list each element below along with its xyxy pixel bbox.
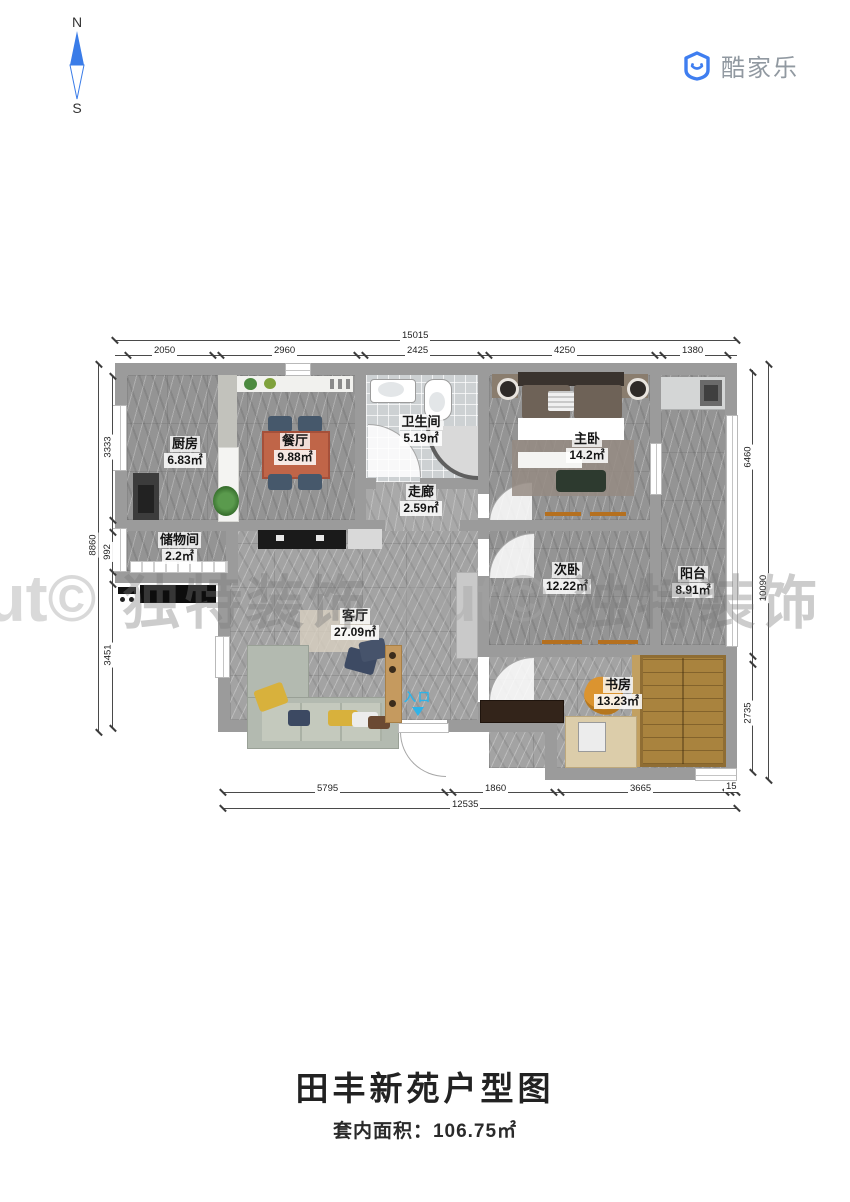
dim-top-total: 15015	[400, 331, 430, 341]
dim-top-seg: 4250	[552, 346, 577, 356]
kujiale-shield-icon	[682, 51, 712, 81]
study-wardrobe	[480, 700, 564, 723]
wall	[478, 531, 489, 539]
tv-console-detail	[316, 535, 324, 541]
rug-strip	[542, 640, 582, 644]
entrance-arrow-icon	[412, 707, 424, 716]
dim-top-seg: 2425	[405, 346, 430, 356]
dim-bottom-seg: 3665	[628, 784, 653, 794]
wall	[545, 732, 557, 780]
room-label-study: 书房 13.23㎡	[572, 677, 664, 709]
toilet-seat	[429, 392, 445, 412]
balcony-floor	[661, 375, 725, 645]
rug-strip	[590, 512, 626, 516]
area-subtitle: 套内面积：106.75㎡	[0, 1116, 850, 1143]
dim-top-seg: 1380	[680, 346, 705, 356]
dim-left-total: 8860	[89, 532, 99, 557]
kitchen-stove-top	[138, 485, 154, 513]
pillow-navy	[288, 710, 310, 726]
bedside-lamp	[497, 378, 519, 400]
plant	[244, 378, 257, 390]
dining-chair	[268, 474, 292, 490]
room-label-dining: 餐厅 9.88㎡	[255, 433, 335, 465]
dining-chair	[268, 416, 292, 432]
tv-console	[258, 530, 346, 549]
entry-door-arc	[400, 732, 446, 777]
dim-top-seg: 2960	[272, 346, 297, 356]
shelf-item	[389, 652, 396, 659]
shelf-item	[389, 700, 396, 707]
dim-left-seg: 992	[103, 542, 113, 562]
window	[726, 415, 738, 647]
wall	[478, 576, 489, 645]
dim-top-seg: 2050	[152, 346, 177, 356]
compass-south-label: S	[72, 100, 81, 116]
compass: N S	[55, 14, 99, 116]
console-side-mat	[348, 529, 382, 549]
compass-needle-icon	[65, 30, 89, 100]
wall	[355, 375, 366, 531]
plant	[556, 470, 606, 492]
bathroom-sink-bowl	[378, 382, 404, 397]
room-label-storage: 储物间 2.2㎡	[132, 532, 227, 564]
dim-right-seg: 6460	[744, 444, 754, 469]
brand-logo: 酷家乐	[682, 48, 799, 83]
room-label-master: 主卧 14.2㎡	[542, 431, 632, 463]
window	[650, 443, 662, 495]
cabinet	[140, 585, 216, 603]
dim-line	[768, 363, 769, 780]
dim-bottom-seg: 1860	[483, 784, 508, 794]
bed-headboard	[518, 372, 624, 386]
brand-name: 酷家乐	[721, 48, 799, 83]
dim-line	[222, 792, 737, 793]
page-title: 田丰新苑户型图	[0, 1062, 850, 1110]
plant	[213, 486, 239, 516]
wall	[460, 520, 489, 531]
wall	[226, 520, 238, 583]
plant	[264, 378, 276, 389]
dim-left-seg: 3451	[104, 642, 114, 667]
rug-strip	[545, 512, 581, 516]
laptop	[578, 722, 606, 752]
wall-decor	[330, 379, 350, 389]
tatami-bed	[640, 655, 726, 767]
wall	[478, 375, 489, 482]
bed-cushion	[548, 391, 574, 411]
room-label-living: 客厅 27.09㎡	[305, 608, 405, 640]
tall-cabinet	[456, 572, 478, 659]
window	[285, 363, 311, 376]
room-label-corridor: 走廊 2.59㎡	[378, 484, 464, 516]
dining-chair	[298, 416, 322, 432]
shelf-item	[389, 666, 396, 673]
entry-door-leaf	[398, 723, 449, 733]
room-label-second-bedroom: 次卧 12.22㎡	[522, 562, 612, 594]
dim-bottom-total: 12535	[450, 800, 480, 810]
compass-north-label: N	[72, 14, 82, 30]
wall	[650, 375, 661, 645]
dim-bottom-seg: 15	[724, 782, 739, 792]
shoe-cabinet	[118, 587, 136, 594]
balcony-sink-basin	[704, 385, 718, 401]
rug-strip	[598, 640, 638, 644]
room-label-kitchen: 厨房 6.83㎡	[145, 436, 225, 468]
wall	[366, 478, 376, 489]
entrance-label: 入口	[404, 688, 432, 705]
room-label-balcony: 阳台 8.91㎡	[659, 566, 727, 598]
bed-pillow	[574, 385, 622, 419]
decor-dot	[120, 597, 125, 602]
wall	[489, 520, 661, 531]
wall	[478, 482, 489, 494]
window	[112, 405, 127, 471]
dim-bottom-seg: 5795	[315, 784, 340, 794]
entrance-marker: 入口	[404, 688, 432, 716]
dining-chair	[298, 474, 322, 490]
room-label-bathroom: 卫生间 5.19㎡	[378, 414, 464, 446]
dim-right-total: 10090	[759, 573, 769, 603]
dim-right-seg: 2735	[744, 700, 754, 725]
bedside-lamp	[627, 378, 649, 400]
window	[695, 768, 737, 781]
dim-left-seg: 3333	[104, 434, 114, 459]
decor-dot	[129, 597, 134, 602]
window	[215, 636, 230, 678]
tv-console-detail	[276, 535, 284, 541]
